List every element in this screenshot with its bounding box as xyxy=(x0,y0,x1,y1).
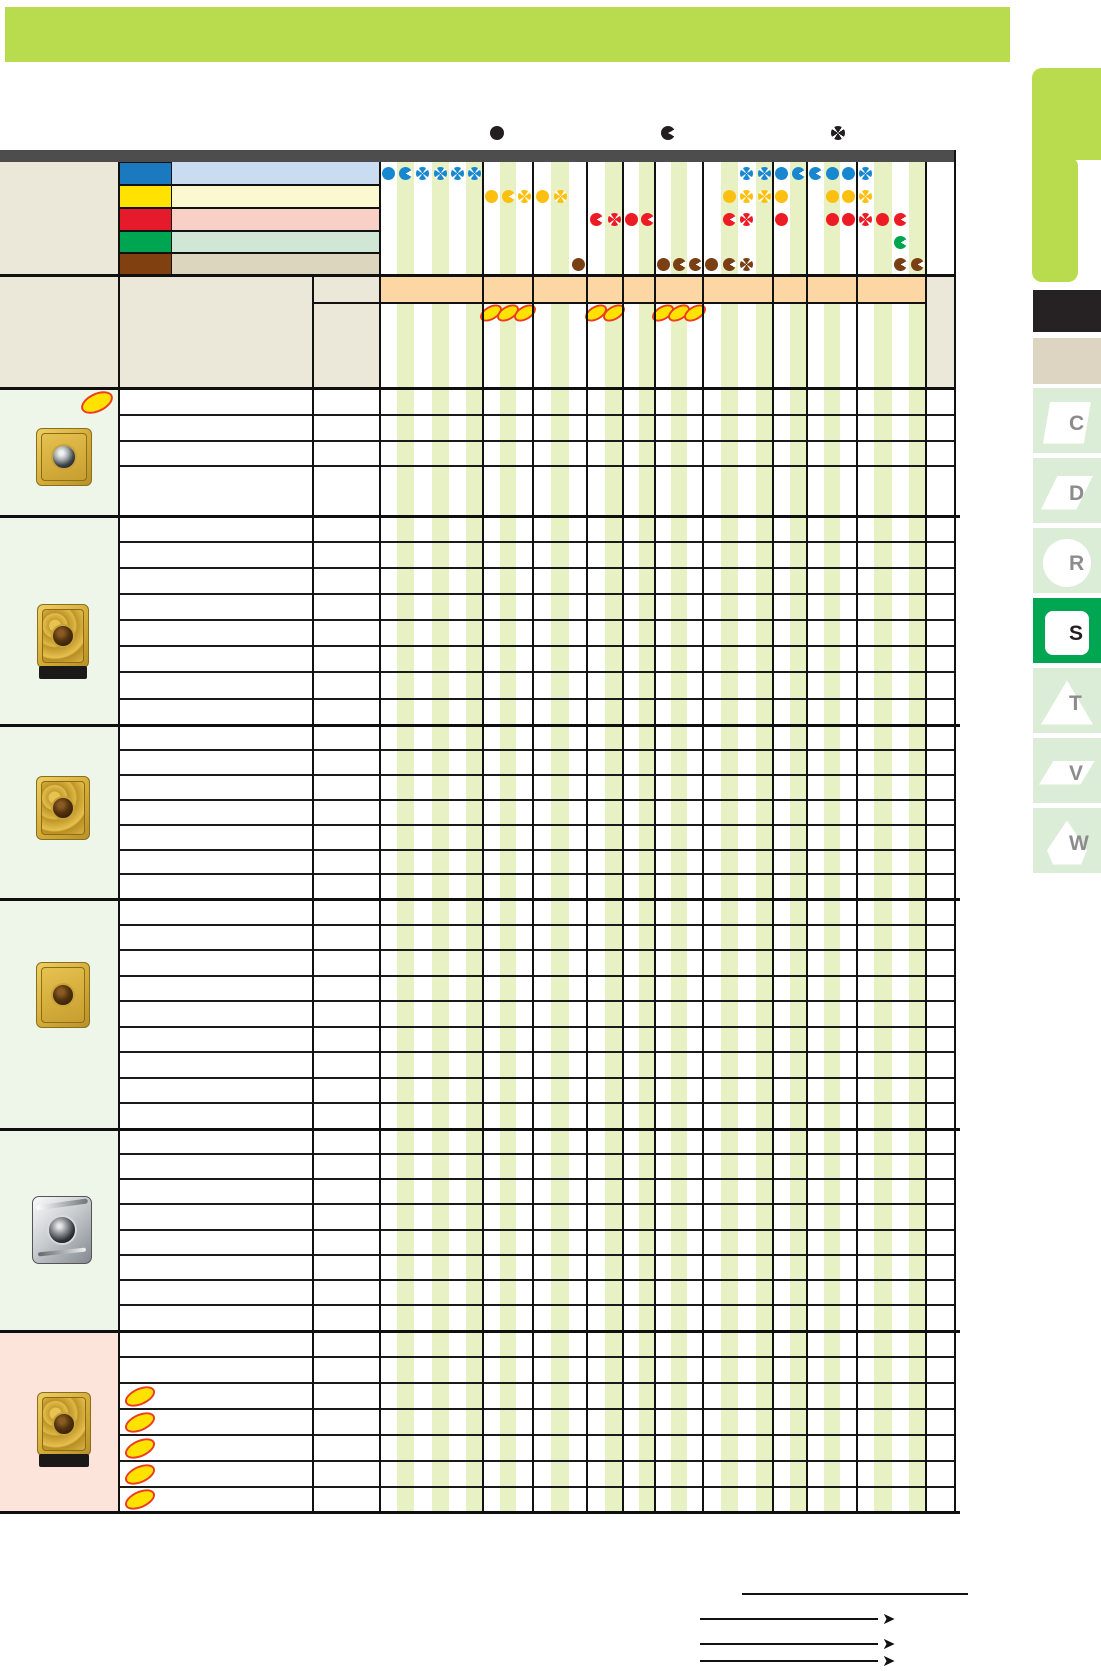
section-divider xyxy=(0,1330,960,1333)
grid-column-stripe xyxy=(824,162,841,1512)
section-black-tab xyxy=(1033,290,1101,332)
grid-column-stripe xyxy=(909,162,926,1512)
grade-dot-cross xyxy=(416,167,429,180)
tab-letter-C: C xyxy=(1069,412,1084,436)
grade-dot-pacman xyxy=(911,258,924,271)
grid-column-stripe xyxy=(605,162,623,1512)
grade-dot-pacman xyxy=(894,258,907,271)
band-divider xyxy=(313,302,926,304)
rhomboid-shape-icon xyxy=(1041,476,1093,510)
material-swatch-yellow-row xyxy=(119,185,172,208)
arrow-icon: ➤ xyxy=(882,1651,895,1671)
tab-letter-S: S xyxy=(1069,622,1083,646)
grade-dot-cross xyxy=(740,258,753,271)
group-divider xyxy=(532,162,534,1512)
grade-dot-pacman xyxy=(894,236,907,249)
grade-dot-cross xyxy=(740,213,753,226)
group-divider xyxy=(379,162,381,1512)
grade-dot-cross xyxy=(859,167,872,180)
second-choice-pacman-icon xyxy=(661,126,675,140)
material-row-divider xyxy=(119,207,380,209)
material-swatch-green-row xyxy=(119,231,172,253)
row-divider xyxy=(119,698,955,700)
row-divider xyxy=(119,1051,955,1053)
grid-column-stripe xyxy=(500,162,517,1512)
material-row-divider xyxy=(119,252,380,254)
row-divider xyxy=(119,1026,955,1028)
row-divider xyxy=(119,1408,955,1410)
grade-dot-circle xyxy=(826,213,839,226)
grid-column-stripe xyxy=(466,162,483,1512)
grid-column-stripe xyxy=(397,162,414,1512)
footer-line xyxy=(700,1643,878,1645)
row-divider xyxy=(119,1178,955,1180)
group-divider xyxy=(806,162,808,1512)
header2-desc-cell xyxy=(119,276,313,390)
insert-base xyxy=(39,1454,89,1467)
triangle-shape-icon xyxy=(1041,681,1093,725)
row-divider xyxy=(119,593,955,595)
group-divider xyxy=(586,162,588,1512)
grade-dot-cross xyxy=(859,190,872,203)
grid-column-stripe xyxy=(671,162,687,1512)
grade-dot-cross xyxy=(468,167,481,180)
row-divider xyxy=(119,1356,955,1358)
row-divider xyxy=(119,671,955,673)
row-divider xyxy=(119,799,955,801)
grade-dot-pacman xyxy=(689,258,702,271)
tab-letter-T: T xyxy=(1069,692,1082,716)
insert-hole xyxy=(51,624,75,648)
section-divider xyxy=(0,1128,960,1131)
grid-column-stripe xyxy=(639,162,655,1512)
material-tint-cell xyxy=(172,162,380,185)
new-product-marker-icon xyxy=(122,1382,158,1411)
new-product-marker-icon xyxy=(122,1408,158,1437)
group-divider xyxy=(925,162,927,1512)
material-swatch-red-row xyxy=(119,208,172,231)
row-divider xyxy=(119,1000,955,1002)
grade-dot-pacman xyxy=(723,258,736,271)
section-divider xyxy=(0,898,960,901)
row-divider xyxy=(119,1486,955,1488)
row-divider xyxy=(119,774,955,776)
row-divider xyxy=(119,619,955,621)
tab-S[interactable]: S xyxy=(1033,598,1101,663)
row-divider xyxy=(119,541,955,543)
grade-dot-circle xyxy=(705,258,718,271)
first-choice-circle-icon xyxy=(490,126,504,140)
grade-dot-circle xyxy=(572,258,585,271)
grade-dot-cross xyxy=(758,190,771,203)
material-tint-cell xyxy=(172,253,380,276)
table-top-bar xyxy=(0,150,955,162)
material-tint-cell xyxy=(172,185,380,208)
grade-dot-cross xyxy=(758,167,771,180)
new-product-marker-icon xyxy=(122,1460,158,1489)
material-swatch-brown-row xyxy=(119,253,172,276)
material-row-divider xyxy=(119,184,380,186)
grade-dot-cross xyxy=(740,167,753,180)
group-divider xyxy=(654,162,656,1512)
photo-col-divider xyxy=(118,162,120,1512)
grade-dot-pacman xyxy=(809,167,822,180)
grade-dot-circle xyxy=(842,213,855,226)
row-divider xyxy=(119,1077,955,1079)
row-divider xyxy=(119,465,955,467)
grade-dot-circle xyxy=(536,190,549,203)
new-product-marker-icon xyxy=(122,1485,158,1514)
section-green-tab xyxy=(1032,158,1078,282)
tab-T[interactable]: T xyxy=(1033,668,1101,733)
header2-narrow-top-cell xyxy=(313,276,380,303)
grid-column-stripe xyxy=(756,162,774,1512)
insert-hole xyxy=(51,444,77,470)
grid-column-stripe xyxy=(721,162,739,1512)
grade-dot-pacman xyxy=(792,167,805,180)
grade-dot-cross xyxy=(434,167,447,180)
grid-column-stripe xyxy=(874,162,891,1512)
table-right-edge xyxy=(954,150,956,1512)
row-divider xyxy=(119,824,955,826)
insert-photo xyxy=(37,604,89,681)
grid-column-stripe xyxy=(790,162,807,1512)
grade-dot-circle xyxy=(485,190,498,203)
footer-line xyxy=(700,1618,878,1620)
material-row-divider xyxy=(119,230,380,232)
row-divider xyxy=(119,1434,955,1436)
group-divider xyxy=(702,162,704,1512)
row-divider xyxy=(119,440,955,442)
grade-dot-circle xyxy=(625,213,638,226)
row-divider xyxy=(119,849,955,851)
header-divider xyxy=(0,274,955,277)
grade-dot-pacman xyxy=(894,213,907,226)
grade-dot-cross xyxy=(518,190,531,203)
row-divider xyxy=(119,645,955,647)
grade-dot-cross xyxy=(859,213,872,226)
insert-base xyxy=(39,666,87,679)
section-divider xyxy=(0,1511,960,1514)
insert-photo xyxy=(36,962,90,1028)
grade-dot-circle xyxy=(775,213,788,226)
page-banner xyxy=(5,7,1010,62)
new-product-marker-icon xyxy=(122,1434,158,1463)
tab-W[interactable]: W xyxy=(1033,808,1101,873)
arrow-icon: ➤ xyxy=(882,1609,895,1629)
row-divider xyxy=(119,924,955,926)
tab-V[interactable]: V xyxy=(1033,738,1101,803)
material-swatch-blue-row xyxy=(119,162,172,185)
group-divider xyxy=(772,162,774,1512)
tab-D[interactable]: D xyxy=(1033,458,1101,523)
header-corner-cell xyxy=(0,162,119,276)
header-bottom-divider xyxy=(0,387,955,390)
group-divider xyxy=(622,162,624,1512)
tab-letter-D: D xyxy=(1069,482,1084,506)
group-divider xyxy=(482,162,484,1512)
grade-dot-circle xyxy=(382,167,395,180)
tab-letter-R: R xyxy=(1069,552,1084,576)
grade-dot-circle xyxy=(775,190,788,203)
grade-dot-circle xyxy=(775,167,788,180)
material-tint-cell xyxy=(172,208,380,231)
thin-parallelogram-shape-icon xyxy=(1039,761,1095,785)
row-divider xyxy=(119,1279,955,1281)
grade-dot-cross xyxy=(451,167,464,180)
row-divider xyxy=(119,1304,955,1306)
row-divider xyxy=(119,1460,955,1462)
grade-dot-circle xyxy=(723,190,736,203)
group-divider xyxy=(856,162,858,1512)
insert-photo xyxy=(36,428,92,486)
grid-column-stripe xyxy=(432,162,449,1512)
grade-dot-cross xyxy=(608,213,621,226)
insert-photo xyxy=(32,1196,92,1264)
tab-R[interactable]: R xyxy=(1033,528,1101,593)
insert-hole xyxy=(47,1215,77,1245)
grade-dot-pacman xyxy=(723,213,736,226)
row-divider xyxy=(119,1102,955,1104)
section-divider xyxy=(0,515,960,518)
row-divider xyxy=(119,975,955,977)
row-divider xyxy=(119,414,955,416)
header2-left-cell xyxy=(0,276,119,390)
catalog-page: CDRSTVW ➤➤➤ xyxy=(0,0,1101,1662)
row-divider xyxy=(119,749,955,751)
grade-dot-circle xyxy=(826,190,839,203)
footer-line xyxy=(742,1593,968,1595)
tab-letter-W: W xyxy=(1069,832,1089,856)
section-green-tab xyxy=(1032,68,1101,160)
section-beige-tab xyxy=(1033,338,1101,384)
row-divider xyxy=(119,873,955,875)
header2-narrow-bottom-cell xyxy=(313,303,380,388)
grade-dot-pacman xyxy=(641,213,654,226)
grade-dot-circle xyxy=(657,258,670,271)
row-divider xyxy=(119,567,955,569)
tab-letter-V: V xyxy=(1069,762,1083,786)
third-choice-cross-icon xyxy=(831,126,845,140)
row-divider xyxy=(119,1203,955,1205)
insert-photo xyxy=(36,776,90,840)
desc-col-divider xyxy=(312,276,314,1512)
row-divider xyxy=(119,1229,955,1231)
row-divider xyxy=(119,1254,955,1256)
grade-dot-cross xyxy=(554,190,567,203)
grade-dot-pacman xyxy=(590,213,603,226)
row-divider xyxy=(119,1153,955,1155)
grade-dot-circle xyxy=(826,167,839,180)
row-divider xyxy=(119,949,955,951)
grade-dot-circle xyxy=(842,167,855,180)
tab-C[interactable]: C xyxy=(1033,388,1101,453)
section-divider xyxy=(0,724,960,727)
grade-dot-pacman xyxy=(673,258,686,271)
row-divider xyxy=(119,1382,955,1384)
header2-right-cell xyxy=(926,276,955,390)
depth-of-cut-band xyxy=(380,277,926,303)
grade-dot-pacman xyxy=(502,190,515,203)
material-tint-cell xyxy=(172,231,380,253)
insert-photo xyxy=(37,1392,91,1469)
grid-column-stripe xyxy=(551,162,569,1512)
grade-dot-cross xyxy=(740,190,753,203)
grade-dot-circle xyxy=(842,190,855,203)
